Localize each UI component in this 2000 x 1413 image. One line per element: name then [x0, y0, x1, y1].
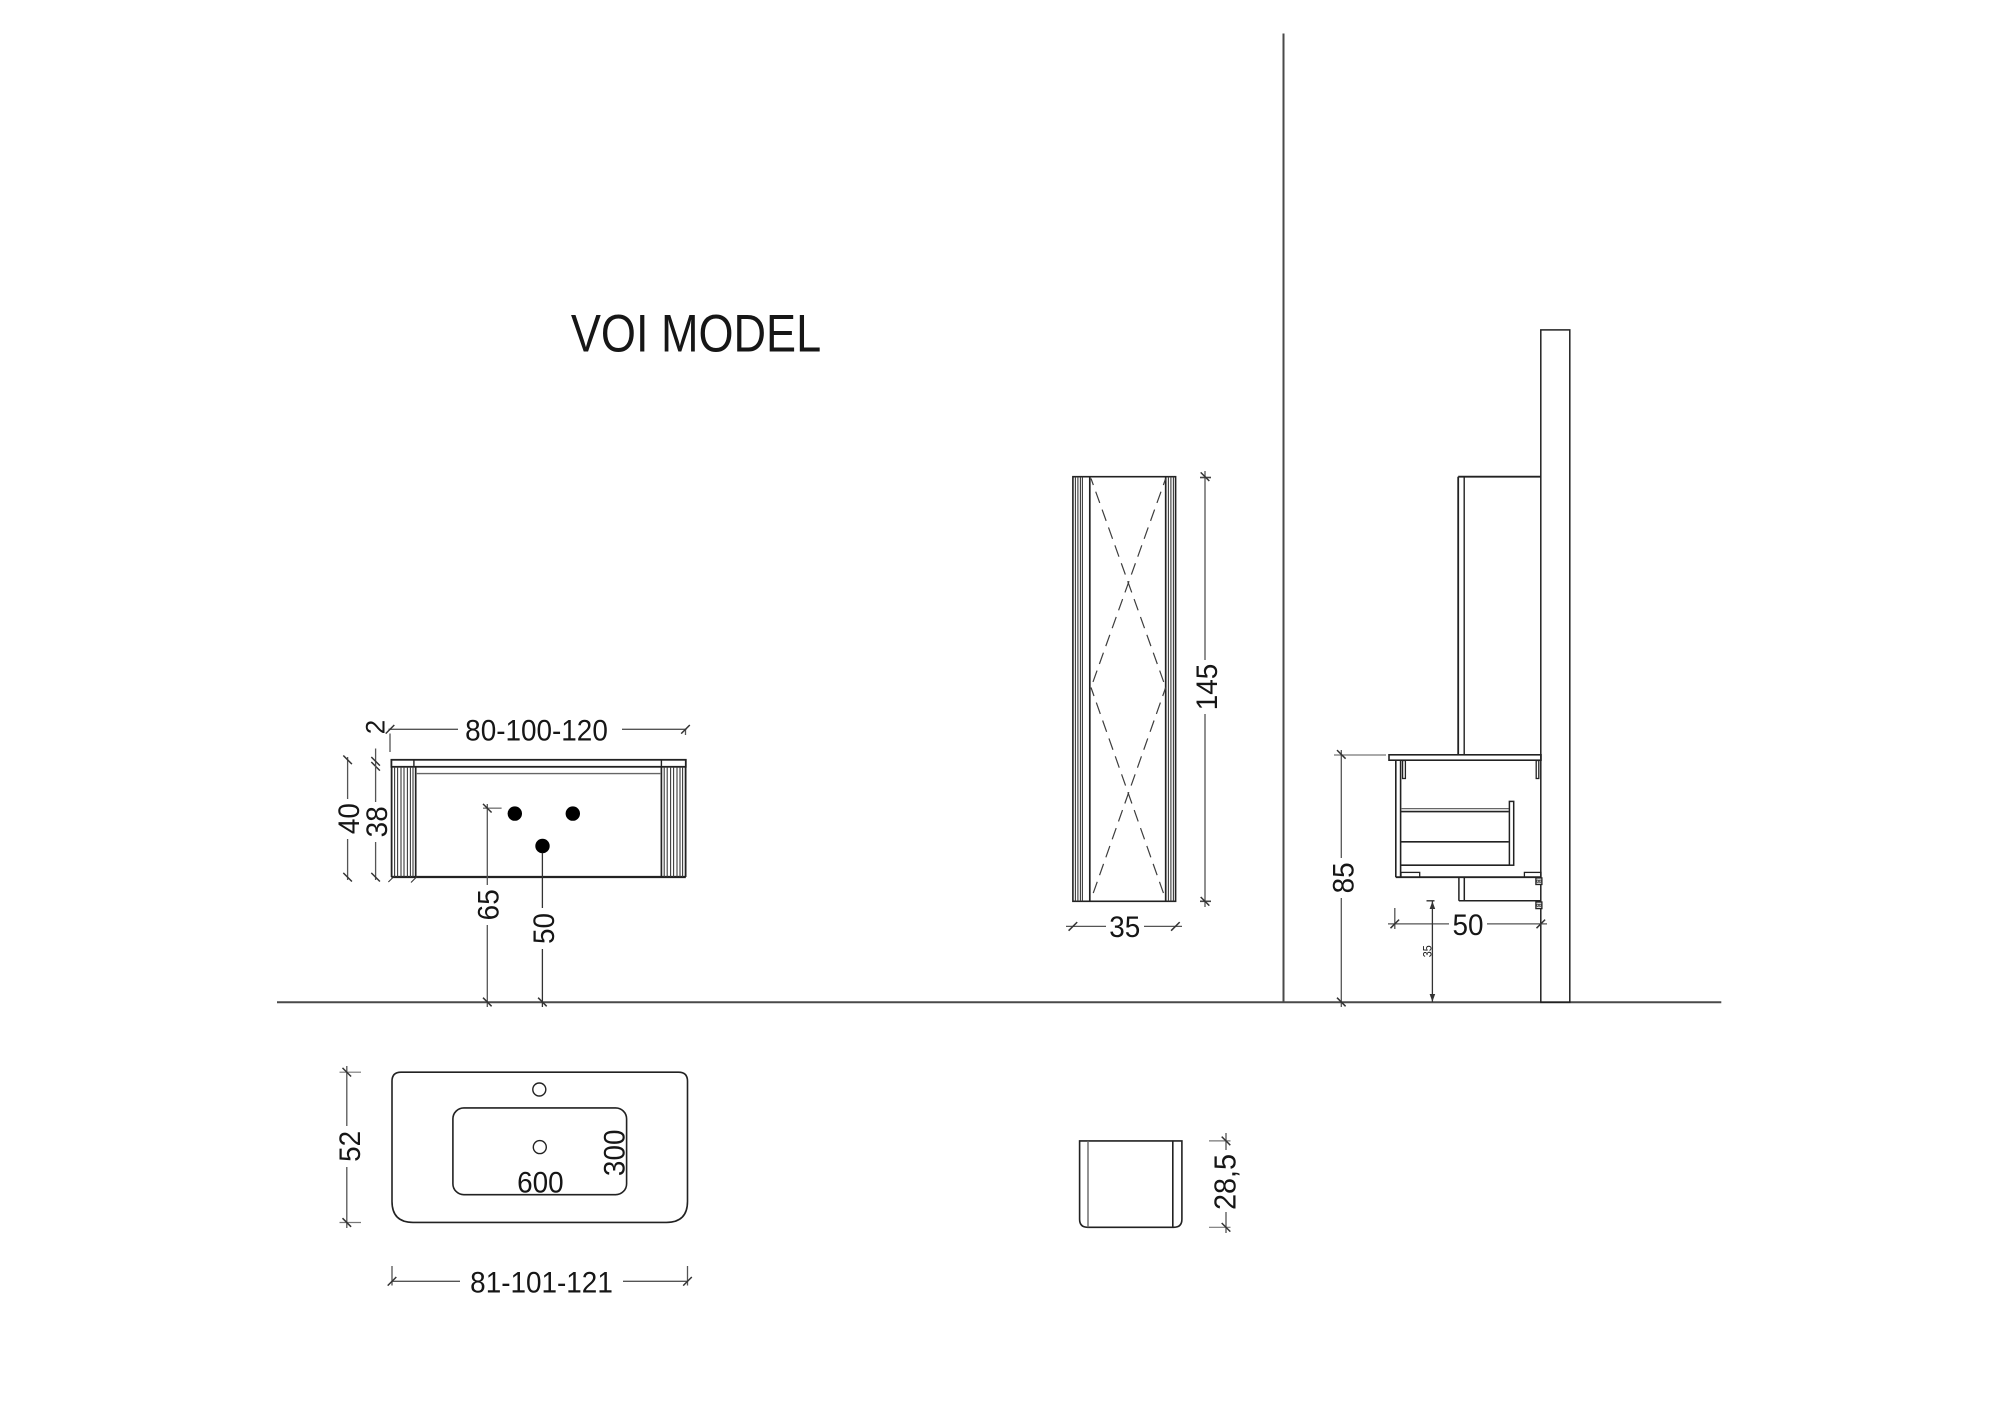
svg-text:81-101-121: 81-101-121: [470, 1267, 613, 1300]
svg-text:38: 38: [361, 806, 394, 837]
svg-text:VOI MODEL: VOI MODEL: [571, 304, 821, 363]
svg-text:65: 65: [473, 889, 506, 920]
svg-text:85: 85: [1328, 862, 1361, 893]
svg-text:600: 600: [517, 1167, 564, 1200]
svg-text:300: 300: [599, 1130, 632, 1177]
svg-text:35: 35: [1422, 945, 1434, 957]
svg-text:28,5: 28,5: [1209, 1154, 1243, 1210]
svg-text:50: 50: [528, 913, 561, 944]
svg-text:52: 52: [334, 1131, 367, 1162]
svg-text:2: 2: [360, 720, 391, 734]
svg-text:35: 35: [1109, 911, 1140, 944]
svg-text:80-100-120: 80-100-120: [465, 715, 608, 748]
svg-text:50: 50: [1452, 909, 1483, 942]
svg-text:145: 145: [1191, 664, 1224, 711]
